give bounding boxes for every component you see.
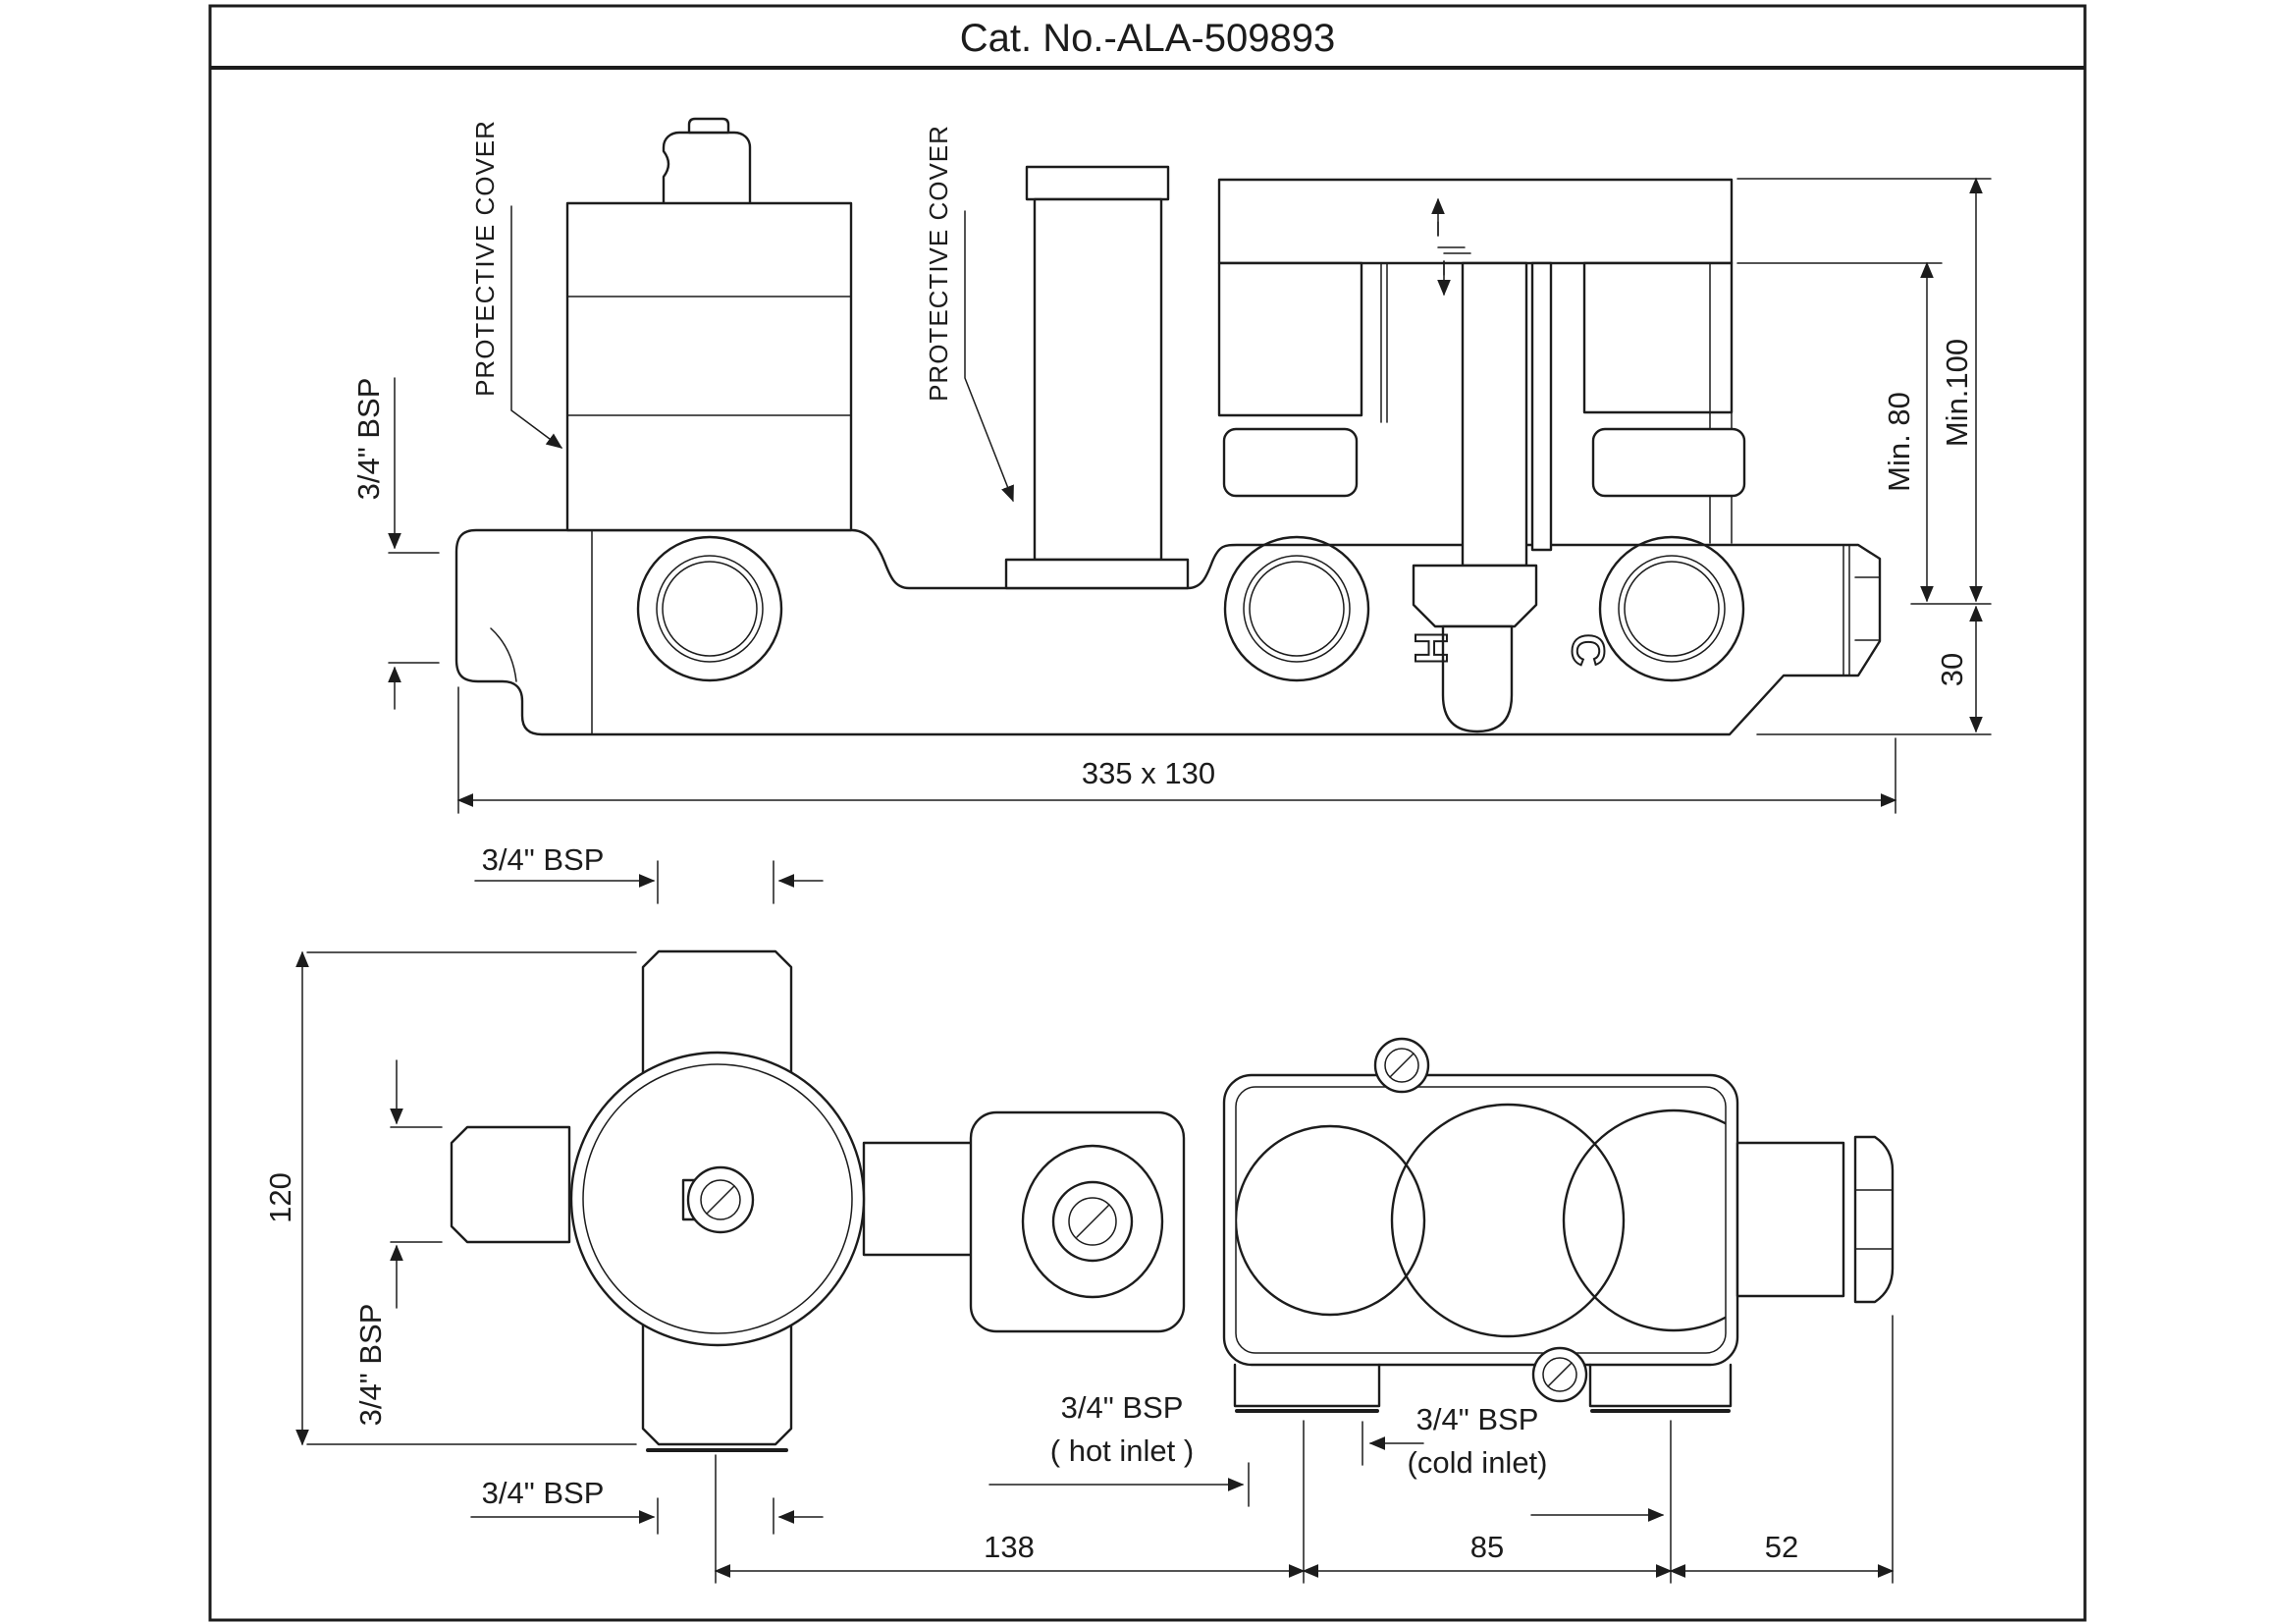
min80-label: Min. 80	[1882, 392, 1916, 492]
technical-drawing: Cat. No.-ALA-509893	[0, 0, 2296, 1623]
spindle-shoulder	[1414, 566, 1536, 626]
bsp-label: 3/4" BSP	[351, 378, 386, 501]
trim-plate-edge	[1219, 180, 1732, 263]
cylinder-barrel	[1035, 199, 1161, 560]
dim30-label: 30	[1935, 653, 1969, 686]
cylinder-cap	[1027, 167, 1168, 199]
plate-outer	[1224, 1075, 1737, 1365]
dim85-label: 85	[1470, 1530, 1504, 1564]
cylinder-base-flange	[1006, 560, 1188, 588]
outlet-neck	[1737, 1143, 1843, 1296]
plate-screw-bottom	[1533, 1348, 1586, 1401]
cartridge-bar	[1463, 263, 1526, 566]
bsp-label: 3/4" BSP	[482, 842, 605, 877]
catalog-number: Cat. No.-ALA-509893	[960, 17, 1335, 60]
dim138-label: 138	[984, 1530, 1035, 1564]
left-port	[452, 1127, 569, 1242]
left-union-flange	[1224, 429, 1357, 496]
dim120-label: 120	[263, 1172, 297, 1223]
dim52-label: 52	[1765, 1530, 1798, 1564]
protective-cover-body	[567, 203, 851, 530]
protective-cover-label: PROTECTIVE COVER	[470, 120, 500, 397]
left-sub-block	[1219, 263, 1362, 415]
knob-stem	[664, 133, 750, 204]
cold-bsp-label: 3/4" BSP	[1416, 1402, 1539, 1436]
bsp-label: 3/4" BSP	[482, 1476, 605, 1510]
hot-bsp-label: 3/4" BSP	[1061, 1390, 1184, 1425]
plate-screw-top	[1375, 1039, 1428, 1092]
protective-cover-label: PROTECTIVE COVER	[924, 125, 953, 402]
thermo-cartridge-top	[971, 1112, 1184, 1331]
knob-cap	[689, 119, 728, 133]
cold-inlet-label: (cold inlet)	[1408, 1445, 1548, 1480]
right-connector	[864, 1143, 972, 1255]
hot-inlet-label: ( hot inlet )	[1050, 1434, 1194, 1468]
diverter-top	[571, 1053, 864, 1345]
right-union-flange	[1593, 429, 1744, 496]
overall-label: 335 x 130	[1082, 756, 1215, 790]
cartridge-bar-thin	[1532, 263, 1551, 550]
hot-marking: H	[1406, 631, 1457, 664]
concealed-plate-top	[1224, 1039, 1784, 1411]
min100-label: Min.100	[1940, 339, 1974, 447]
hex-nut	[1855, 1137, 1893, 1302]
drawing-sheet: Cat. No.-ALA-509893	[0, 0, 2296, 1623]
cold-marking: C	[1563, 633, 1614, 666]
bsp-label: 3/4" BSP	[353, 1304, 388, 1427]
outlet-top	[1737, 1137, 1893, 1302]
